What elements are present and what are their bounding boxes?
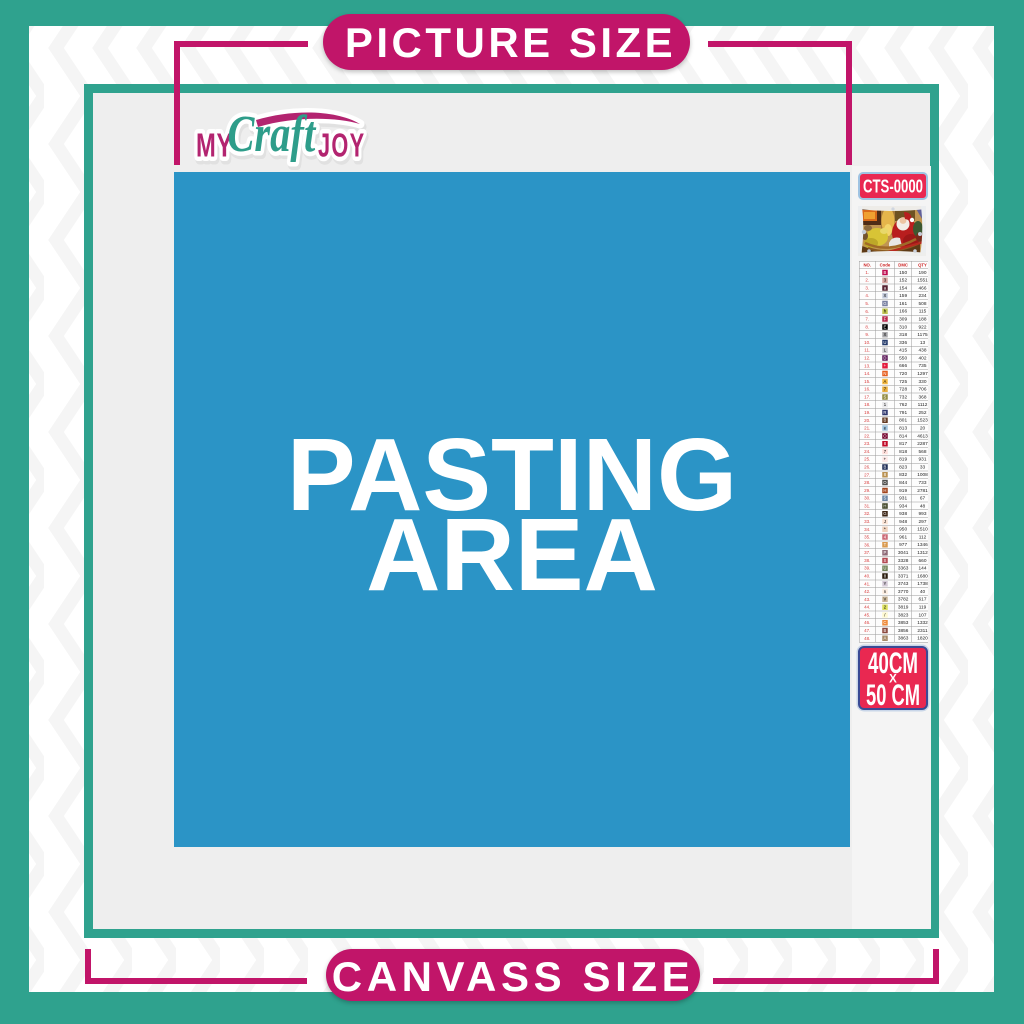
svg-text:JOY: JOY	[318, 127, 366, 164]
svg-text:CTS-0000: CTS-0000	[863, 176, 923, 197]
svg-text:50 CM: 50 CM	[866, 679, 920, 708]
svg-text:Craft: Craft	[227, 105, 317, 163]
